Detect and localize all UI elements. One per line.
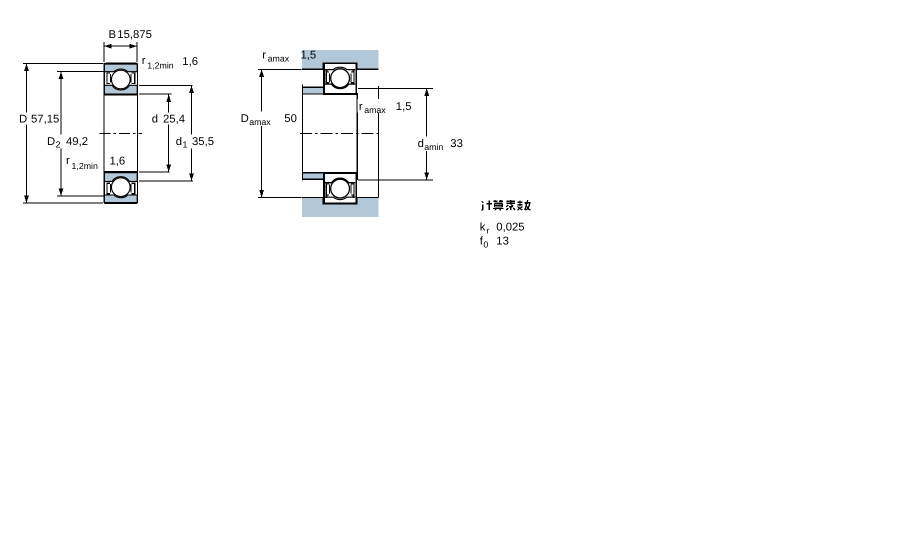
- svg-text:49,2: 49,2: [66, 136, 88, 148]
- svg-text:amax: amax: [364, 105, 386, 115]
- svg-text:1,5: 1,5: [396, 101, 412, 113]
- svg-text:1,2min: 1,2min: [147, 61, 174, 71]
- svg-text:r: r: [359, 101, 363, 113]
- svg-text:r: r: [486, 225, 489, 235]
- svg-text:25,4: 25,4: [163, 113, 185, 125]
- svg-text:13: 13: [496, 236, 509, 248]
- svg-text:1: 1: [183, 140, 188, 150]
- svg-text:amax: amax: [268, 54, 290, 64]
- svg-text:r: r: [262, 50, 266, 62]
- svg-text:0: 0: [483, 240, 488, 250]
- svg-text:d: d: [176, 136, 182, 148]
- svg-text:1,6: 1,6: [182, 56, 198, 68]
- svg-text:d: d: [152, 113, 158, 125]
- svg-text:amax: amax: [249, 117, 271, 127]
- svg-text:33: 33: [450, 138, 463, 150]
- svg-text:D: D: [241, 113, 249, 125]
- svg-text:0,025: 0,025: [496, 221, 524, 233]
- svg-text:r: r: [66, 155, 70, 167]
- svg-text:35,5: 35,5: [192, 136, 214, 148]
- svg-text:k: k: [480, 221, 486, 233]
- svg-text:amin: amin: [424, 142, 443, 152]
- svg-text:D: D: [47, 136, 55, 148]
- svg-text:d: d: [418, 138, 424, 150]
- svg-text:1,5: 1,5: [301, 50, 317, 62]
- svg-text:1,6: 1,6: [110, 156, 126, 168]
- svg-text:r: r: [142, 55, 146, 67]
- svg-text:50: 50: [284, 113, 297, 125]
- svg-text:57,15: 57,15: [31, 113, 59, 125]
- svg-text:15,875: 15,875: [117, 29, 152, 41]
- svg-text:B: B: [109, 29, 117, 41]
- svg-text:1,2min: 1,2min: [72, 161, 99, 171]
- svg-text:2: 2: [56, 140, 61, 150]
- svg-text:D: D: [19, 113, 27, 125]
